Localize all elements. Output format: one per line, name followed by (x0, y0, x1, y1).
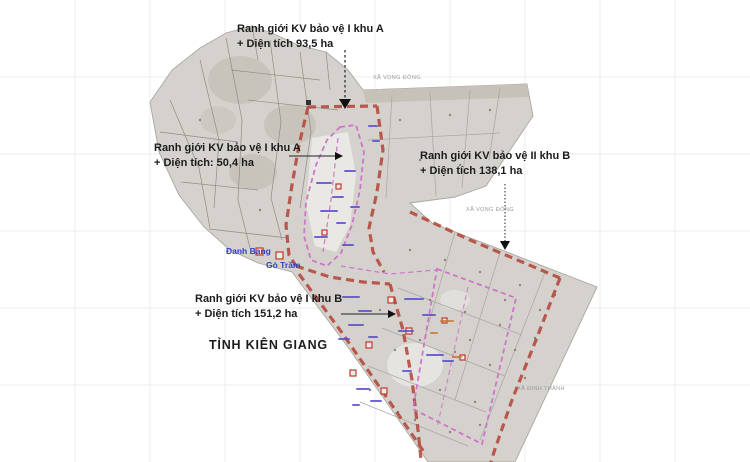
zone-b2-label: Ranh giới KV bảo vệ II khu B + Diện tích… (420, 149, 570, 179)
zone-b2-label-line2: + Diện tích 138,1 ha (420, 164, 570, 179)
commune-label-vong-dong-north: XÃ VỌNG ĐÔNG (373, 75, 421, 81)
heritage-zoning-map: Ranh giới KV bảo vệ I khu A + Diện tích … (0, 0, 750, 462)
zone-a1-label-line1: Ranh giới KV bảo vệ I khu A (237, 22, 384, 37)
zone-a2-label-line2: + Diện tích: 50,4 ha (154, 156, 301, 171)
zone-a2-label: Ranh giới KV bảo vệ I khu A + Diện tích:… (154, 141, 301, 171)
map-graphic (0, 0, 750, 462)
province-label: TỈNH KIÊN GIANG (209, 338, 328, 352)
arrow-zone-b2 (500, 241, 510, 250)
zone-b1-label-line2: + Diện tích 151,2 ha (195, 307, 342, 322)
zone-b1-label-line1: Ranh giới KV bảo vệ I khu B (195, 292, 342, 307)
place-label-go-tram: Gò Trầm (266, 260, 300, 270)
place-label-danh-bang: Đanh Bạng (226, 246, 271, 256)
commune-label-vong-dong-east: XÃ VỌNG ĐÔNG (466, 207, 514, 213)
zone-b1-label: Ranh giới KV bảo vệ I khu B + Diện tích … (195, 292, 342, 322)
zone-a2-label-line1: Ranh giới KV bảo vệ I khu A (154, 141, 301, 156)
summit-square-marker (306, 100, 311, 105)
commune-label-dinh-thanh: XÃ ĐỊNH THÀNH (517, 386, 565, 392)
zone-a1-label: Ranh giới KV bảo vệ I khu A + Diện tích … (237, 22, 384, 52)
zone-b2-label-line1: Ranh giới KV bảo vệ II khu B (420, 149, 570, 164)
zone-a1-label-line2: + Diện tích 93,5 ha (237, 37, 384, 52)
